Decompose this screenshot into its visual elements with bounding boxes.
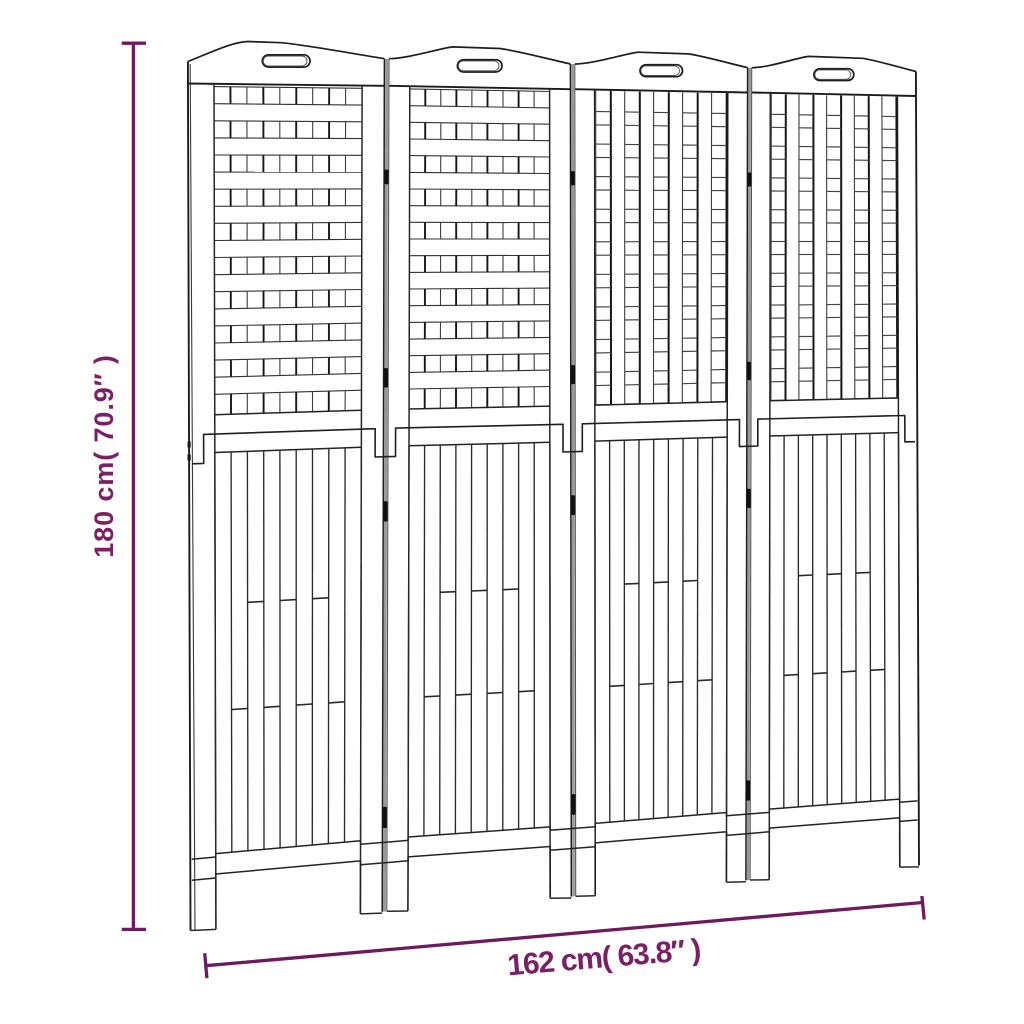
svg-text:180 cm( 70.9″ ): 180 cm( 70.9″ ) [89, 354, 119, 558]
